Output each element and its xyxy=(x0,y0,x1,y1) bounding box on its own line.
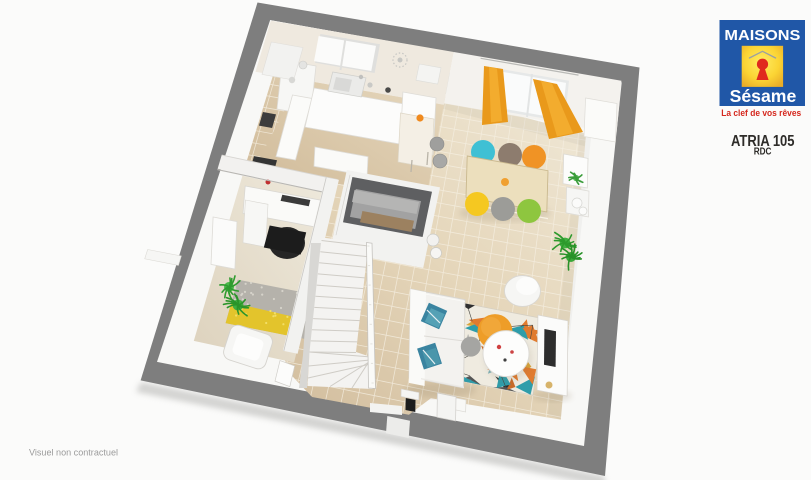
svg-text:RDC: RDC xyxy=(754,147,772,158)
svg-text:Sésame: Sésame xyxy=(730,86,797,106)
svg-text:MAISONS: MAISONS xyxy=(724,28,800,44)
svg-text:Visuel non contractuel: Visuel non contractuel xyxy=(29,448,118,458)
svg-text:La clef de vos rêves: La clef de vos rêves xyxy=(721,108,801,118)
